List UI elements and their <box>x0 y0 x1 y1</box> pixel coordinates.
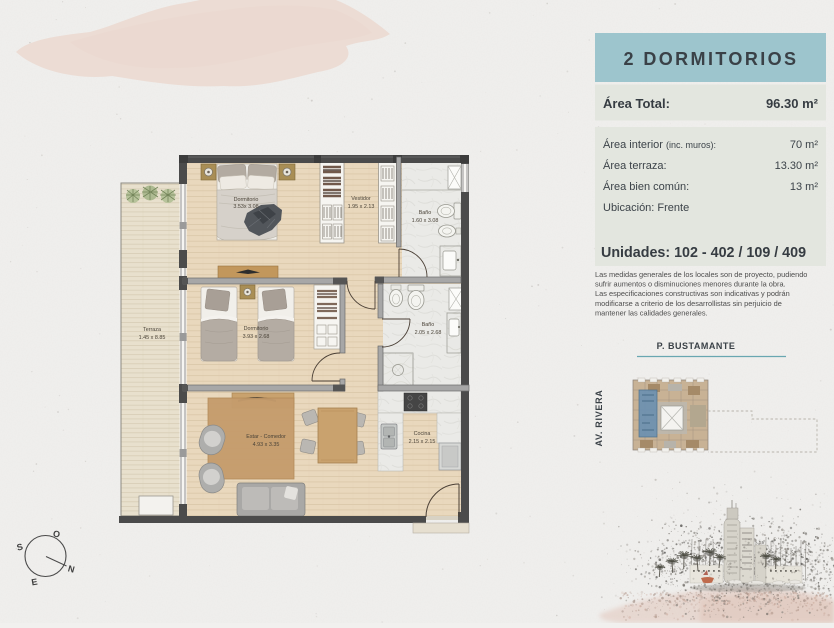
svg-text:Las medidas generales de los l: Las medidas generales de los locales son… <box>595 270 807 279</box>
svg-text:Estar - Comedor: Estar - Comedor <box>246 434 286 440</box>
svg-text:96.30 m²: 96.30 m² <box>766 96 819 111</box>
svg-text:Las especificaciones construct: Las especificaciones constructivas son i… <box>595 289 790 298</box>
svg-text:Área interior (inc. muros):: Área interior (inc. muros): <box>603 138 716 151</box>
svg-text:AV. RIVERA: AV. RIVERA <box>594 389 604 446</box>
svg-text:13.30 m²: 13.30 m² <box>775 160 819 172</box>
svg-text:1.45 x 8.85: 1.45 x 8.85 <box>139 335 166 341</box>
svg-text:Terraza: Terraza <box>143 327 161 333</box>
svg-text:sufrir aumentos o disminucione: sufrir aumentos o disminuciones menores … <box>595 280 786 289</box>
svg-text:P. BUSTAMANTE: P. BUSTAMANTE <box>657 341 736 351</box>
svg-text:Área bien común:: Área bien común: <box>603 180 689 193</box>
svg-text:Dormitorio: Dormitorio <box>244 326 269 332</box>
svg-text:Ubicación: Frente: Ubicación: Frente <box>603 202 689 214</box>
svg-text:1.95 x 2.13: 1.95 x 2.13 <box>348 204 375 210</box>
svg-text:Unidades: 102 - 402 / 109 / 40: Unidades: 102 - 402 / 109 / 409 <box>601 245 806 261</box>
svg-text:70 m²: 70 m² <box>790 139 818 151</box>
svg-text:2.15 x 2.15: 2.15 x 2.15 <box>409 439 436 445</box>
svg-text:modificarse a criterio de los: modificarse a criterio de los desarrolli… <box>595 299 782 308</box>
svg-text:Baño: Baño <box>422 322 435 328</box>
svg-text:Vestidor: Vestidor <box>351 196 371 202</box>
svg-text:mantener las calidades general: mantener las calidades generales. <box>595 308 708 317</box>
svg-text:3.53x 3.08: 3.53x 3.08 <box>233 204 258 210</box>
svg-text:Baño: Baño <box>419 210 432 216</box>
svg-text:Cocina: Cocina <box>414 431 431 437</box>
svg-text:Área terraza:: Área terraza: <box>603 159 667 172</box>
svg-text:2 DORMITORIOS: 2 DORMITORIOS <box>624 49 799 69</box>
svg-text:4.93 x 3.35: 4.93 x 3.35 <box>253 442 280 448</box>
svg-text:Área Total:: Área Total: <box>603 96 670 111</box>
svg-text:Dormitorio: Dormitorio <box>234 197 259 203</box>
svg-text:2.05 x 2.68: 2.05 x 2.68 <box>415 330 442 336</box>
svg-text:3.93 x 2.68: 3.93 x 2.68 <box>243 334 270 340</box>
svg-text:1.60 x 3.08: 1.60 x 3.08 <box>412 218 439 224</box>
svg-text:13 m²: 13 m² <box>790 181 818 193</box>
